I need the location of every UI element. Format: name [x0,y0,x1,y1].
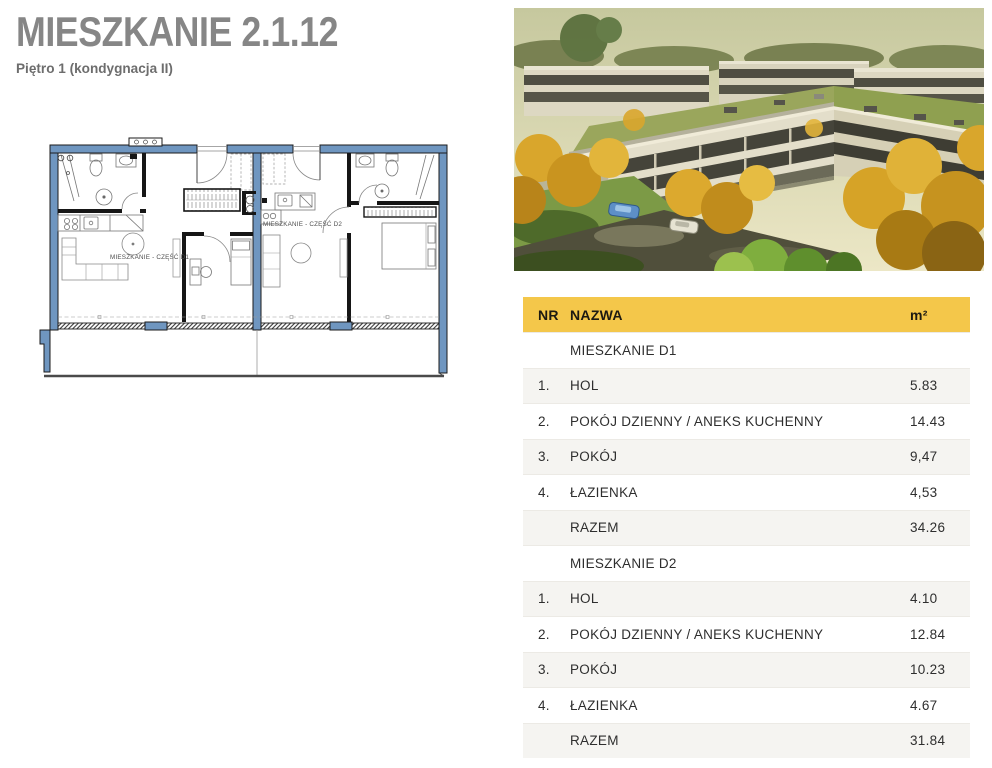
cell-nazwa: HOL [570,591,910,606]
cell-nazwa: ŁAZIENKA [570,485,910,500]
cell-area: 5.83 [910,378,970,393]
page-subtitle: Piętro 1 (kondygnacja II) [16,60,173,76]
cell-nr: 3. [538,449,570,464]
cell-area: 31.84 [910,733,970,748]
cell-nr: 4. [538,698,570,713]
table-row: 3.POKÓJ10.23 [523,652,970,688]
cell-area: 10.23 [910,662,970,677]
terrace [44,330,444,376]
cell-nazwa: POKÓJ DZIENNY / ANEKS KUCHENNY [570,627,910,642]
table-row: 4.ŁAZIENKA4,53 [523,474,970,510]
cell-nazwa: ŁAZIENKA [570,698,910,713]
cell-nr: 2. [538,627,570,642]
area-table-header: NR NAZWA m² [523,297,970,332]
table-row: MIESZKANIE D2 [523,545,970,581]
building-render-image [514,8,984,271]
building-render-svg [514,8,984,271]
unit-d1-label: MIESZKANIE - CZĘŚĆ D1 [110,252,189,261]
cell-nr: 2. [538,414,570,429]
col-m2: m² [910,307,970,323]
table-row: MIESZKANIE D1 [523,332,970,368]
cell-area: 14.43 [910,414,970,429]
cell-nazwa: MIESZKANIE D2 [570,556,910,571]
cell-area: 4,53 [910,485,970,500]
cell-nazwa: RAZEM [570,733,910,748]
wall-niche [129,138,162,146]
area-table: NR NAZWA m² MIESZKANIE D11.HOL5.832.POKÓ… [523,297,970,758]
cell-area: 34.26 [910,520,970,535]
furniture [58,154,436,287]
table-row: 2.POKÓJ DZIENNY / ANEKS KUCHENNY14.43 [523,403,970,439]
cell-nr: 3. [538,662,570,677]
cell-area: 12.84 [910,627,970,642]
floor-plan: MIESZKANIE - CZĘŚĆ D1 MIESZKANIE - CZĘŚĆ… [34,137,460,385]
table-row: RAZEM31.84 [523,723,970,759]
facade-dashes [58,316,439,319]
col-nr: NR [538,307,570,323]
unit-d2-label: MIESZKANIE - CZĘŚĆ D2 [263,219,342,228]
table-row: 3.POKÓJ9,47 [523,439,970,475]
cell-nazwa: MIESZKANIE D1 [570,343,910,358]
table-row: 1.HOL5.83 [523,368,970,404]
table-row: 2.POKÓJ DZIENNY / ANEKS KUCHENNY12.84 [523,616,970,652]
table-row: RAZEM34.26 [523,510,970,546]
cell-nr: 4. [538,485,570,500]
cell-area: 4.67 [910,698,970,713]
cell-nazwa: POKÓJ [570,662,910,677]
table-row: 4.ŁAZIENKA4.67 [523,687,970,723]
cell-area: 9,47 [910,449,970,464]
cell-nazwa: HOL [570,378,910,393]
cell-nazwa: RAZEM [570,520,910,535]
cell-area: 4.10 [910,591,970,606]
table-row: 1.HOL4.10 [523,581,970,617]
floor-plan-svg: MIESZKANIE - CZĘŚĆ D1 MIESZKANIE - CZĘŚĆ… [34,137,460,385]
area-table-body: MIESZKANIE D11.HOL5.832.POKÓJ DZIENNY / … [523,332,970,758]
col-nazwa: NAZWA [570,307,910,323]
window-sills [58,323,439,329]
cell-nazwa: POKÓJ [570,449,910,464]
cell-nr: 1. [538,591,570,606]
cell-nazwa: POKÓJ DZIENNY / ANEKS KUCHENNY [570,414,910,429]
outer-walls [40,145,447,373]
page-title: MIESZKANIE 2.1.12 [16,8,338,56]
cell-nr: 1. [538,378,570,393]
